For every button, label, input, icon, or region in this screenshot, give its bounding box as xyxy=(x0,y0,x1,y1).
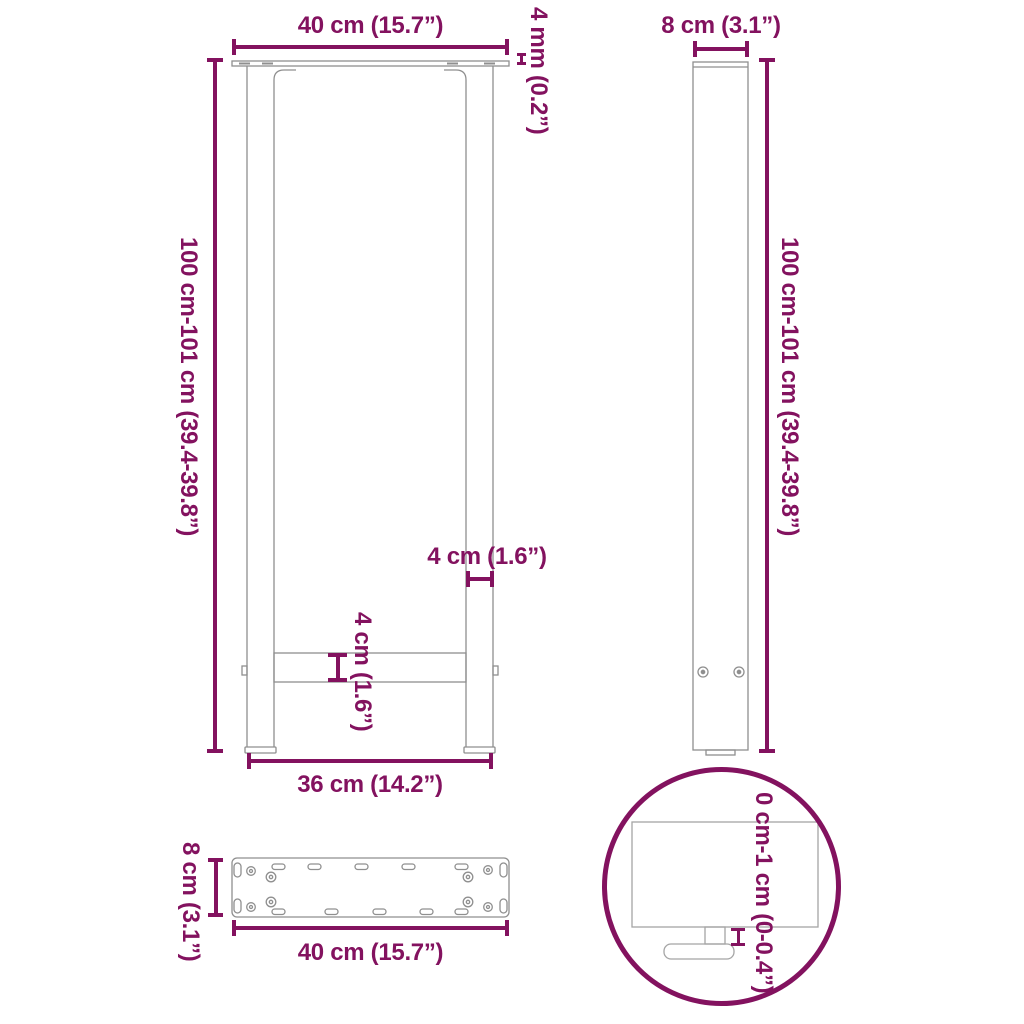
front-bottom-width-label: 36 cm (14.2”) xyxy=(247,771,493,799)
plate-vslot xyxy=(500,863,507,877)
front-right-tab xyxy=(493,666,498,675)
side-depth-dim-line xyxy=(693,47,749,51)
side-view-outline xyxy=(693,62,748,755)
plate-screw-hole xyxy=(484,903,493,912)
product-linework xyxy=(0,0,1024,1024)
plate-vslot xyxy=(234,863,241,877)
crossbar-height-label: 4 cm (1.6”) xyxy=(350,612,374,731)
side-foot xyxy=(706,750,735,755)
side-height-label: 100 cm-101 cm (39.4-39.8”) xyxy=(777,237,801,536)
foot-adjustment-marker xyxy=(731,928,745,946)
leg-width-dim-line xyxy=(466,577,494,581)
plate-screw-hole xyxy=(247,867,256,876)
plate-hslot xyxy=(455,864,468,870)
plate-screw-hole-dot xyxy=(487,906,490,909)
leg-width-label: 4 cm (1.6”) xyxy=(407,543,567,571)
plate-hslot xyxy=(455,909,468,915)
front-bottom-width-dim-line xyxy=(247,759,493,763)
dimension-diagram: 40 cm (15.7”) 4 mm (0.2”) 100 cm-101 cm … xyxy=(0,0,1024,1024)
foot-adjustment-label: 0 cm-1 cm (0-0.4”) xyxy=(751,792,775,993)
plate-depth-marker xyxy=(208,858,223,917)
crossbar-height-marker xyxy=(328,653,347,682)
plate-ringed-hole xyxy=(266,872,276,882)
plate-hslot xyxy=(355,864,368,870)
side-depth-label: 8 cm (3.1”) xyxy=(641,12,801,40)
front-top-plate xyxy=(232,61,509,66)
plate-screw-hole-dot xyxy=(250,870,253,873)
plate-hslot xyxy=(420,909,433,915)
plate-depth-label: 8 cm (3.1”) xyxy=(178,842,202,961)
front-height-dim-line xyxy=(213,58,217,753)
plate-thickness-label: 4 mm (0.2”) xyxy=(526,7,550,134)
side-height-dim-line xyxy=(765,58,769,753)
plate-ringed-hole-dot xyxy=(269,875,272,878)
front-left-leg-inner-edge xyxy=(274,70,296,747)
front-right-leg-inner-edge xyxy=(444,70,466,747)
plate-hslot xyxy=(308,864,321,870)
front-height-label: 100 cm-101 cm (39.4-39.8”) xyxy=(176,237,200,536)
plate-ringed-hole-dot xyxy=(466,875,469,878)
plate-ringed-hole-dot xyxy=(466,900,469,903)
front-left-tab xyxy=(242,666,247,675)
plate-screw-hole xyxy=(247,903,256,912)
plate-hslot xyxy=(272,909,285,915)
side-leg-body xyxy=(693,62,748,750)
side-screw-right-dot xyxy=(737,670,740,673)
plate-ringed-hole xyxy=(463,872,473,882)
plate-screw-hole-dot xyxy=(487,869,490,872)
plate-hslot xyxy=(325,909,338,915)
plate-vslot xyxy=(234,899,241,913)
detail-zoom-circle xyxy=(602,767,841,1006)
plate-screw-hole xyxy=(484,866,493,875)
plate-hslot xyxy=(402,864,415,870)
front-top-width-dim-line xyxy=(232,45,509,49)
plate-ringed-hole-dot xyxy=(269,900,272,903)
plate-ringed-hole xyxy=(463,897,473,907)
plate-width-dim-line xyxy=(232,926,509,930)
side-screw-left-dot xyxy=(701,670,704,673)
plate-width-label: 40 cm (15.7”) xyxy=(232,939,509,967)
plate-screw-hole-dot xyxy=(250,906,253,909)
plate-ringed-hole xyxy=(266,897,276,907)
plate-hslot xyxy=(272,864,285,870)
plate-vslot xyxy=(500,899,507,913)
plate-top-view-outline xyxy=(232,858,509,917)
plate-hslot xyxy=(373,909,386,915)
front-top-width-label: 40 cm (15.7”) xyxy=(232,12,509,40)
